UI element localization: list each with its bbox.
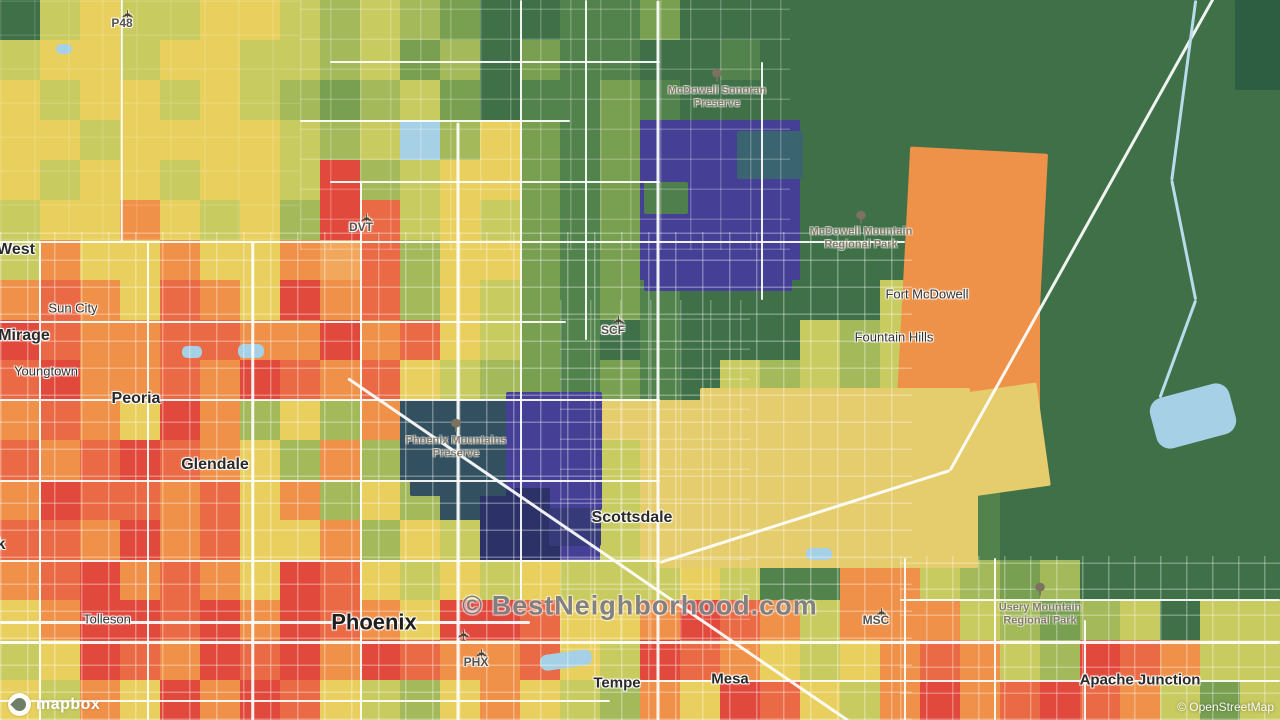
place-label-el-mirage: Mirage xyxy=(0,327,50,345)
place-label-fountain-hills: Fountain Hills xyxy=(855,331,934,346)
place-label-phoenix: Phoenix xyxy=(331,609,417,634)
place-label-mcdowell-mountain-regional-park: McDowell MountainRegional Park xyxy=(810,225,913,250)
mapbox-logo-text: mapbox xyxy=(36,696,100,714)
mapbox-logo[interactable]: mapbox xyxy=(8,693,100,716)
place-label-sun-city-west: West xyxy=(0,241,35,259)
osm-attribution-link[interactable]: © OpenStreetMap xyxy=(1177,700,1274,714)
place-label-mcdowell-sonoran-preserve: McDowell SonoranPreserve xyxy=(668,84,766,109)
place-label-tolleson: Tolleson xyxy=(83,613,131,628)
tree-icon xyxy=(1034,583,1047,602)
place-label-youngtown: Youngtown xyxy=(14,365,78,380)
place-label-glendale: Glendale xyxy=(181,456,249,474)
place-label-apache-junction: Apache Junction xyxy=(1080,671,1201,688)
place-label-airport-scf: SCF xyxy=(601,324,625,338)
place-label-usery-mountain-regional-park: Usery MountainRegional Park xyxy=(999,601,1082,626)
place-label-sun-city: Sun City xyxy=(48,302,97,317)
place-label-airport-phx: PHX xyxy=(464,656,489,670)
place-label-airport-msc: MSC xyxy=(863,614,890,628)
place-label-litchfield-park: Park xyxy=(0,536,5,554)
place-label-phoenix-mountains-preserve: Phoenix MountainsPreserve xyxy=(406,434,507,459)
place-label-tempe: Tempe xyxy=(593,674,640,691)
map-canvas[interactable]: ✈✈✈✈✈✈P48McDowell SonoranPreserveMcDowel… xyxy=(0,0,1280,720)
place-label-fort-mcdowell: Fort McDowell xyxy=(885,288,968,303)
place-label-airport-dvt: DVT xyxy=(349,221,373,235)
place-label-peoria: Peoria xyxy=(112,390,161,408)
place-label-scottsdale: Scottsdale xyxy=(592,509,673,527)
watermark: © BestNeighborhood.com xyxy=(462,591,817,622)
place-label-airport-p48: P48 xyxy=(111,17,132,31)
mapbox-icon xyxy=(8,693,31,716)
place-label-mesa: Mesa xyxy=(711,670,749,687)
